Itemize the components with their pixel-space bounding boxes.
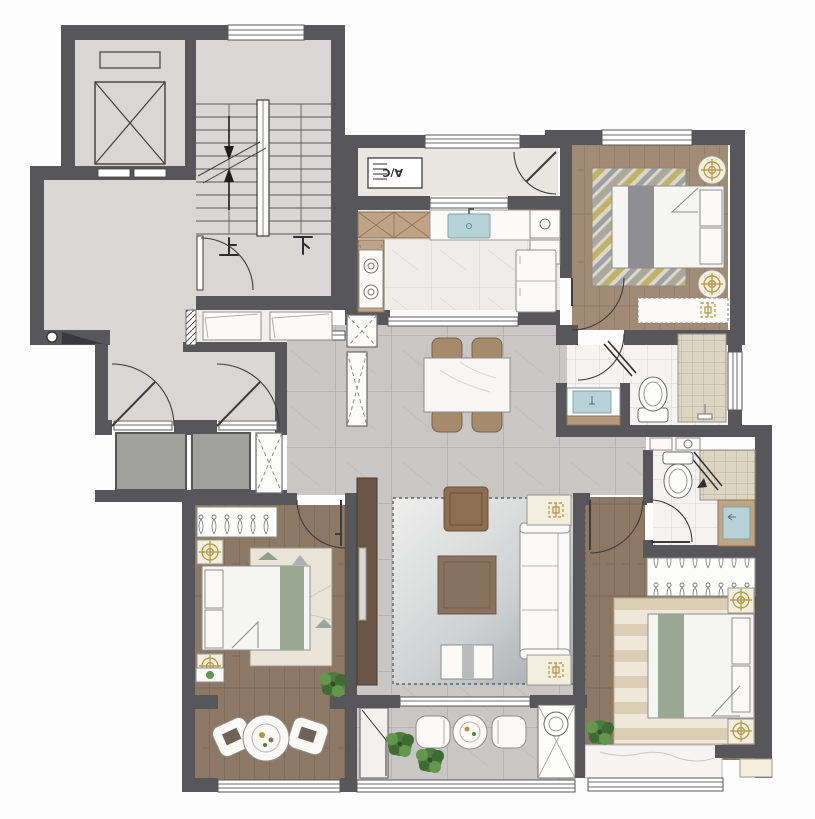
planter-box xyxy=(196,668,224,682)
bathroom1-window xyxy=(728,352,742,410)
elevator-door xyxy=(98,169,130,177)
entry-sill-left xyxy=(114,421,172,430)
refrigerator xyxy=(516,250,556,312)
nightstand xyxy=(197,540,223,564)
ac-unit: A/C xyxy=(368,158,422,188)
bed-runner xyxy=(658,614,684,718)
vanity-niche xyxy=(567,388,620,425)
balcony-slider xyxy=(400,697,530,706)
round-side-table xyxy=(243,715,289,761)
bedroom2-wardrobe xyxy=(197,507,277,537)
vanity2 xyxy=(718,500,755,546)
bedroom2-bed xyxy=(202,566,310,650)
ac-platform-box xyxy=(740,759,772,777)
nightstand-round xyxy=(698,270,726,298)
stove-counter xyxy=(358,240,384,312)
bay-window-floor xyxy=(585,745,722,778)
bay-window xyxy=(588,778,723,791)
duct-shaft-kitchen xyxy=(347,315,377,347)
entry-sill-right xyxy=(219,421,277,430)
stairwell-window xyxy=(228,25,304,40)
pillow xyxy=(205,610,223,648)
balcony-table xyxy=(453,715,487,749)
coffee-table xyxy=(438,556,496,614)
bench xyxy=(441,645,493,679)
balcony-window xyxy=(357,780,575,792)
tv-console xyxy=(357,478,377,685)
pillow xyxy=(732,666,750,712)
side-table-bottom xyxy=(527,655,571,685)
dresser xyxy=(638,298,728,323)
bed-runner xyxy=(280,566,304,650)
lobby-floor xyxy=(44,180,196,345)
accent-armchair xyxy=(444,487,488,531)
pillow xyxy=(732,618,750,664)
shower1 xyxy=(678,334,726,422)
elevator-door xyxy=(134,169,166,177)
balcony-chair-left xyxy=(416,716,450,748)
duct-shaft-entry xyxy=(256,433,282,493)
equipment-platform-left xyxy=(116,433,186,490)
sliding-panel-door xyxy=(360,708,388,778)
side-table-top xyxy=(527,495,571,525)
bedroom1-window xyxy=(602,130,692,145)
tv xyxy=(359,548,366,620)
kitchen-dining-slider xyxy=(388,317,518,326)
wall-hatch xyxy=(186,310,196,345)
nightstand xyxy=(728,588,754,613)
shoe-cabinet-left xyxy=(203,312,261,340)
toilet2 xyxy=(663,452,693,498)
duct-shaft-dining xyxy=(347,352,367,426)
nightstand-round xyxy=(698,156,726,184)
shower2 xyxy=(700,450,755,500)
bed-runner xyxy=(628,186,654,268)
floor-plan-canvas: 上 下 A/C xyxy=(0,0,815,819)
washing-machine xyxy=(538,705,575,778)
pillow xyxy=(205,570,223,608)
vanity-counter xyxy=(567,416,620,425)
elevator-room-floor xyxy=(75,40,185,166)
toilet1 xyxy=(638,377,668,422)
equipment-platform-right xyxy=(192,433,250,490)
pillow xyxy=(700,228,722,264)
ac-label: A/C xyxy=(382,166,403,179)
master-bed xyxy=(648,614,754,718)
washer-cabinet xyxy=(650,438,700,450)
kitchen-slider xyxy=(430,198,508,208)
service-balcony-window xyxy=(425,135,520,148)
sitting-window xyxy=(218,780,340,792)
floor-drain xyxy=(47,332,57,342)
shoe-cabinet-right xyxy=(270,312,332,340)
nightstand xyxy=(728,719,754,744)
bedroom1-bed xyxy=(612,186,724,268)
entry-hall-floor xyxy=(108,345,275,420)
upper-cabinets xyxy=(358,212,430,238)
floor-plan: 上 下 A/C xyxy=(0,0,815,819)
hallway-floor xyxy=(556,437,646,495)
pillow xyxy=(700,190,722,226)
balcony-chair-right xyxy=(492,716,526,748)
sofa xyxy=(520,523,570,659)
